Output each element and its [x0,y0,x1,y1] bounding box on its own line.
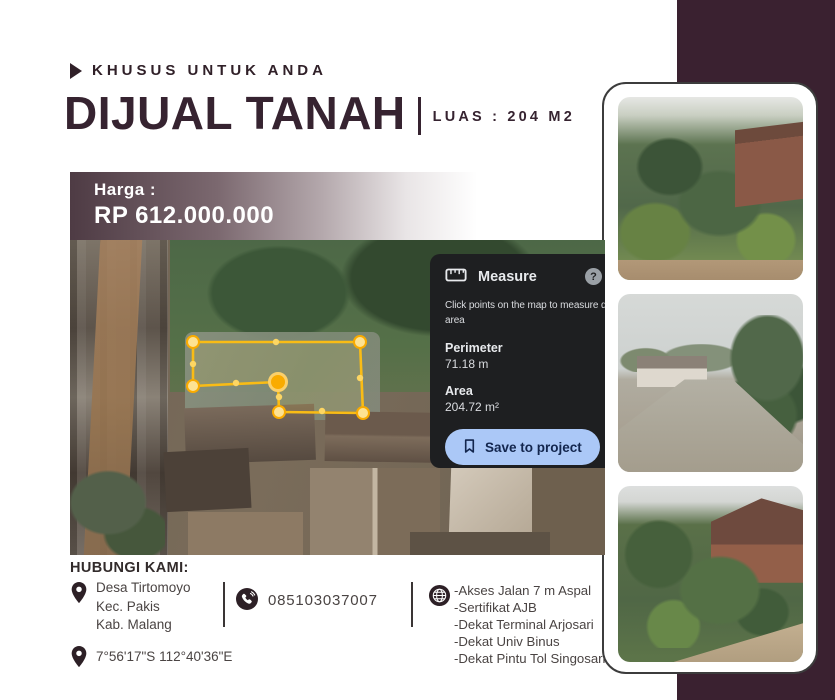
address-line: Desa Tirtomoyo [96,579,191,598]
land-photo-2 [618,294,803,472]
photo1-dirt-road [618,260,803,280]
feature-item: -Sertifikat AJB [454,599,606,616]
price-value: RP 612.000.000 [94,202,490,230]
globe-icon [428,584,451,612]
address-line: Kec. Pakis [96,598,191,617]
contact-divider [411,582,413,627]
land-photo-1 [618,97,803,280]
contact-divider [223,582,225,627]
satellite-map-image: Measure ? Click points on the map to mea… [70,240,605,555]
feature-item: -Dekat Terminal Arjosari [454,616,606,633]
land-photo-3 [618,486,803,662]
photo3-vegetation [618,504,803,648]
flyer-page: KHUSUS UNTUK ANDA DIJUAL TANAH LUAS : 20… [0,0,835,700]
ruler-icon [445,268,467,287]
title-divider [418,97,421,135]
area-value: 204.72 m² [445,400,605,414]
address-line: Kab. Malang [96,616,191,635]
area-label: Area [445,384,605,398]
feature-item: -Akses Jalan 7 m Aspal [454,582,606,599]
eyebrow-text: KHUSUS UNTUK ANDA [92,62,327,79]
address-block: Desa Tirtomoyo Kec. Pakis Kab. Malang [96,579,191,635]
gps-coordinates: 7°56'17"S 112°40'36"E [96,649,232,664]
price-banner: Harga : RP 612.000.000 [70,172,490,240]
measure-title: Measure [478,269,537,285]
feature-item: -Dekat Pintu Tol Singosari [454,650,606,667]
eyebrow-row: KHUSUS UNTUK ANDA [70,62,327,79]
measure-header: Measure ? [445,268,605,286]
page-title: DIJUAL TANAH [64,88,406,139]
photo-card [602,82,818,674]
bookmark-icon [463,438,476,457]
price-label: Harga : [94,180,490,200]
perimeter-value: 71.18 m [445,357,605,371]
help-icon[interactable]: ? [585,268,602,285]
feature-item: -Dekat Univ Binus [454,633,606,650]
measure-description: Click points on the map to measure d are… [445,298,605,328]
phone-icon [235,587,259,616]
phone-number: 085103037007 [268,592,378,609]
perimeter-label: Perimeter [445,341,605,355]
save-to-project-button[interactable]: Save to project [445,429,600,465]
land-area-label: LUAS : 204 M2 [433,109,575,125]
photo1-brick-wall [735,122,803,207]
measure-tool-panel: Measure ? Click points on the map to mea… [430,254,605,468]
features-list: -Akses Jalan 7 m Aspal -Sertifikat AJB -… [454,582,606,667]
title-row: DIJUAL TANAH LUAS : 204 M2 [64,88,575,139]
play-marker-icon [70,63,82,79]
contact-heading: HUBUNGI KAMI: [70,560,189,576]
location-pin-icon [68,645,90,674]
active-vertex-dot [270,374,287,391]
location-pin-icon [68,581,90,610]
